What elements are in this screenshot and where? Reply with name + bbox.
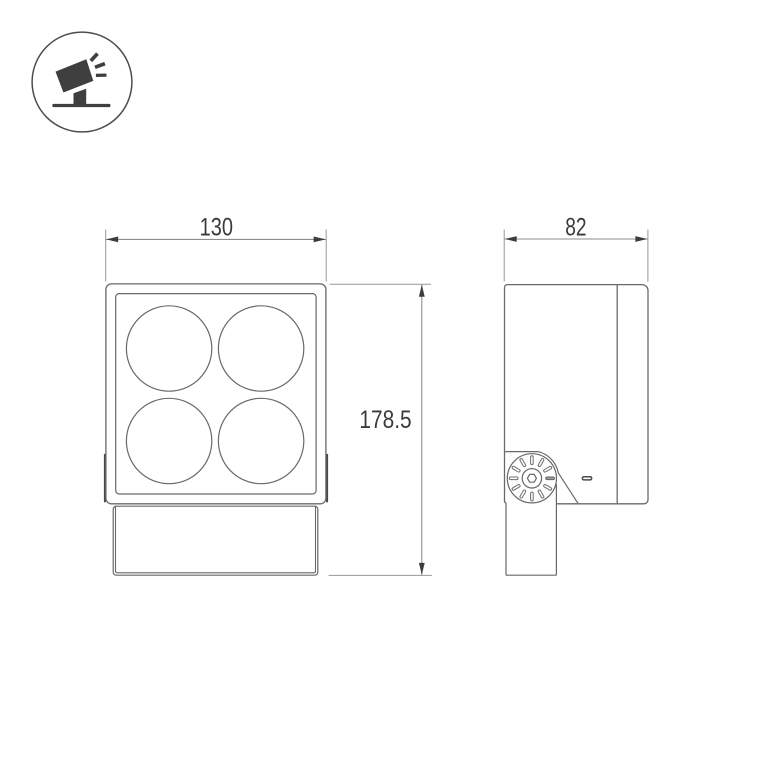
svg-text:82: 82: [565, 214, 586, 242]
svg-text:130: 130: [200, 214, 233, 242]
svg-text:178.5: 178.5: [359, 406, 411, 434]
